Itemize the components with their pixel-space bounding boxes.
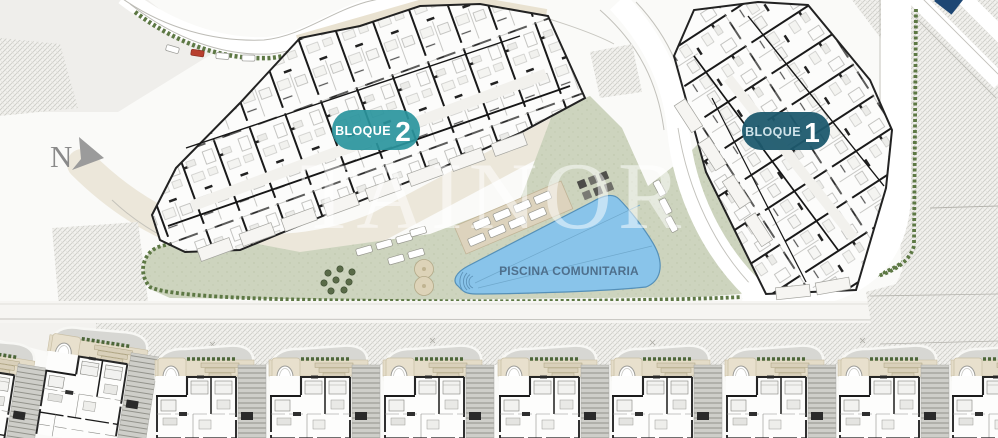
svg-text:N: N	[50, 139, 72, 174]
svg-text:BLOQUE: BLOQUE	[335, 124, 391, 138]
svg-text:PISCINA COMUNITARIA: PISCINA COMUNITARIA	[499, 264, 639, 278]
svg-text:TAINOR: TAINOR	[300, 143, 687, 249]
svg-text:BLOQUE: BLOQUE	[745, 125, 801, 139]
svg-text:1: 1	[804, 117, 820, 148]
